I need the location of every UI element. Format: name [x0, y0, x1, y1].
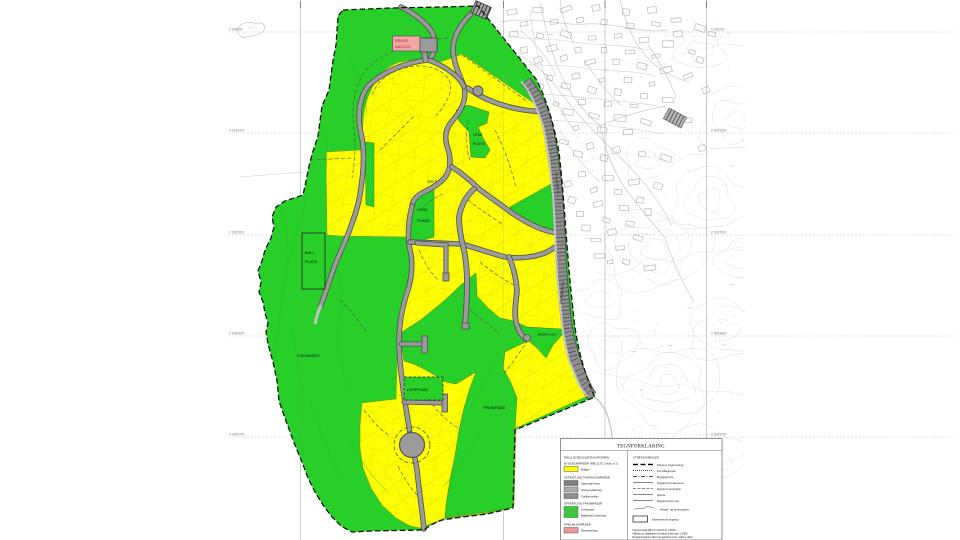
svg-text:OFFENTLIGE FRIOMRÅDER: OFFENTLIGE FRIOMRÅDER — [564, 501, 602, 506]
svg-text:FRIOMRÅDE: FRIOMRÅDE — [483, 405, 506, 410]
svg-text:PLASS: PLASS — [473, 142, 486, 146]
svg-text:Renseanlegg: Renseanlegg — [581, 529, 598, 533]
svg-text:Regulert tomtegrense: Regulert tomtegrense — [657, 481, 684, 485]
svg-text:Regulert kant veg: Regulert kant veg — [657, 499, 679, 503]
svg-text:Høyde- og terrengkoter: Høyde- og terrengkoter — [660, 508, 689, 512]
svg-text:STREKSYMBOLER: STREKSYMBOLER — [633, 456, 659, 460]
svg-text:Boliger: Boliger — [581, 468, 590, 472]
svg-text:BALL-: BALL- — [305, 251, 316, 255]
svg-text:Kartgrunnlag ØK (AJ 043-5-4) 1: Kartgrunnlag ØK (AJ 043-5-4) 1:5000 — [633, 528, 677, 532]
svg-text:X 6923500: X 6923500 — [229, 231, 245, 235]
svg-text:X 693200: X 693200 — [229, 28, 243, 32]
svg-text:PLASS: PLASS — [305, 260, 318, 264]
svg-text:LEKE: LEKE — [473, 133, 483, 137]
svg-text:Gang-/sykkelveg: Gang-/sykkelveg — [581, 488, 602, 492]
svg-text:Planens begrensning: Planens begrensning — [657, 463, 684, 467]
svg-text:SPESIALOMRÅDER: SPESIALOMRÅDER — [564, 522, 591, 527]
svg-text:Gjerde: Gjerde — [657, 493, 666, 497]
svg-text:X 6933600: X 6933600 — [229, 332, 245, 336]
svg-text:Formålsgrense: Formålsgrense — [657, 469, 676, 473]
svg-text:Leikeplass: Leikeplass — [581, 508, 595, 512]
svg-text:Trafikkområde: Trafikkområde — [581, 495, 599, 499]
svg-text:OFFENTLIGE TRAFIKKOMRÅDER: OFFENTLIGE TRAFIKKOMRÅDER — [564, 475, 610, 480]
svg-text:Målsatt av digitalisert fra øk: Målsatt av digitalisert fra økonomisk ka… — [633, 532, 688, 536]
svg-text:LEKEPLASS: LEKEPLASS — [407, 388, 428, 392]
svg-text:PLASS: PLASS — [417, 218, 430, 223]
svg-text:Byggegrense: Byggegrense — [657, 475, 674, 479]
svg-text:ANLEGG: ANLEGG — [395, 45, 411, 49]
svg-text:Reguleringskart utført og ajou: Reguleringskart utført og ajourført ette… — [633, 535, 693, 539]
svg-text:X 6943700: X 6943700 — [229, 433, 245, 437]
svg-text:X 6943700: X 6943700 — [711, 433, 727, 437]
svg-text:LEKE-: LEKE- — [417, 207, 429, 212]
svg-text:Eksisterende bygning: Eksisterende bygning — [652, 518, 679, 522]
svg-text:X 693200: X 693200 — [711, 28, 725, 32]
svg-text:X 6913300: X 6913300 — [711, 129, 727, 133]
svg-text:Ballplass/Leikeplass: Ballplass/Leikeplass — [581, 514, 607, 518]
svg-text:X 6923500: X 6923500 — [711, 231, 727, 235]
svg-text:VEG A: VEG A — [427, 179, 438, 184]
svg-text:RENSE-: RENSE- — [395, 39, 410, 43]
svg-text:TEGNFORKLARING: TEGNFORKLARING — [617, 445, 665, 450]
svg-text:BYGGEOMRÅDER (PBL § 25 1.ledd: BYGGEOMRÅDER (PBL § 25 1.ledd nr.1) — [564, 461, 618, 466]
svg-text:PBL § 25 REGULERINGSFORMÅL: PBL § 25 REGULERINGSFORMÅL — [564, 455, 610, 460]
svg-text:Regulert senterlinje: Regulert senterlinje — [657, 487, 682, 491]
svg-text:X 6933600: X 6933600 — [711, 332, 727, 336]
svg-text:Kjøreveg/fortau: Kjøreveg/fortau — [581, 482, 601, 486]
svg-text:X 6913300: X 6913300 — [229, 129, 245, 133]
